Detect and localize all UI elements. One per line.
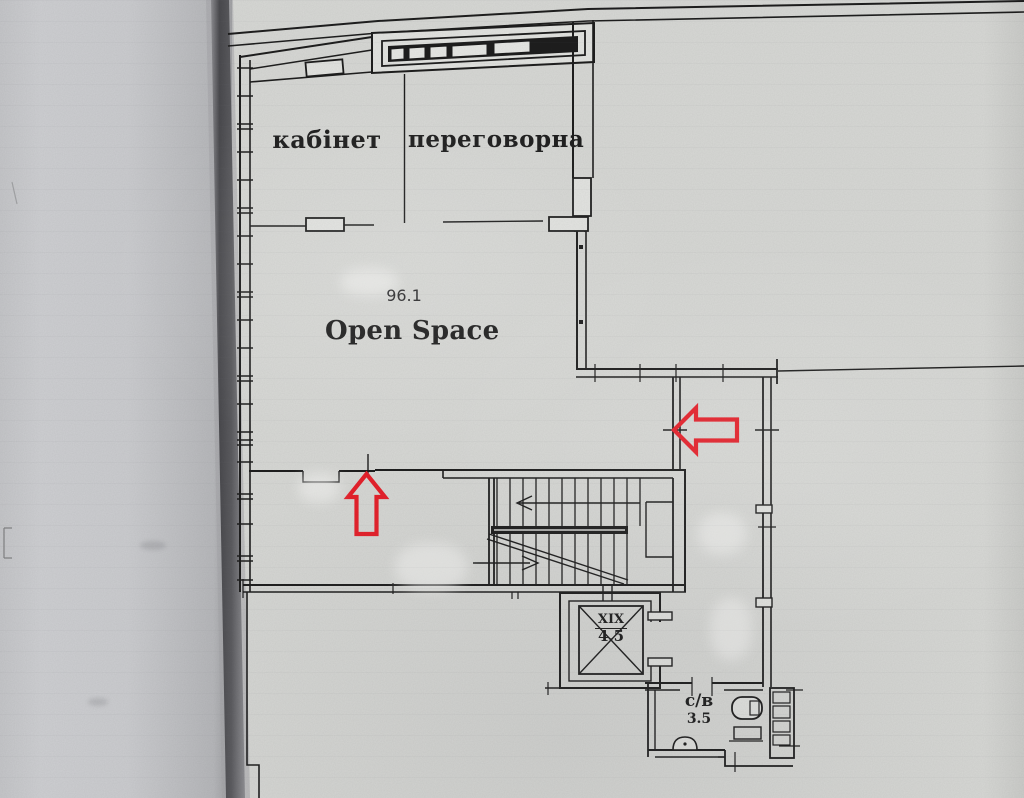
- scanned-floor-plan-page: кабінет переговорна 96.1 Open Space XIX …: [0, 0, 1024, 798]
- room-label-open-space: Open Space: [325, 318, 485, 345]
- bathroom-area-value: 3.5: [669, 712, 729, 727]
- bathroom-label: с/в 3.5: [669, 693, 729, 727]
- bathroom-label-top: с/в: [685, 691, 713, 711]
- room-label-meeting-room: переговорна: [408, 128, 573, 152]
- elevator-label: XIX 4.5: [584, 613, 638, 644]
- room-label-office: кабінет: [272, 127, 382, 152]
- open-space-area-value: 96.1: [372, 288, 436, 305]
- paper-grain: [0, 0, 1024, 798]
- elevator-area-value: 4.5: [584, 629, 638, 645]
- floor-plan-drawing: [0, 0, 1024, 798]
